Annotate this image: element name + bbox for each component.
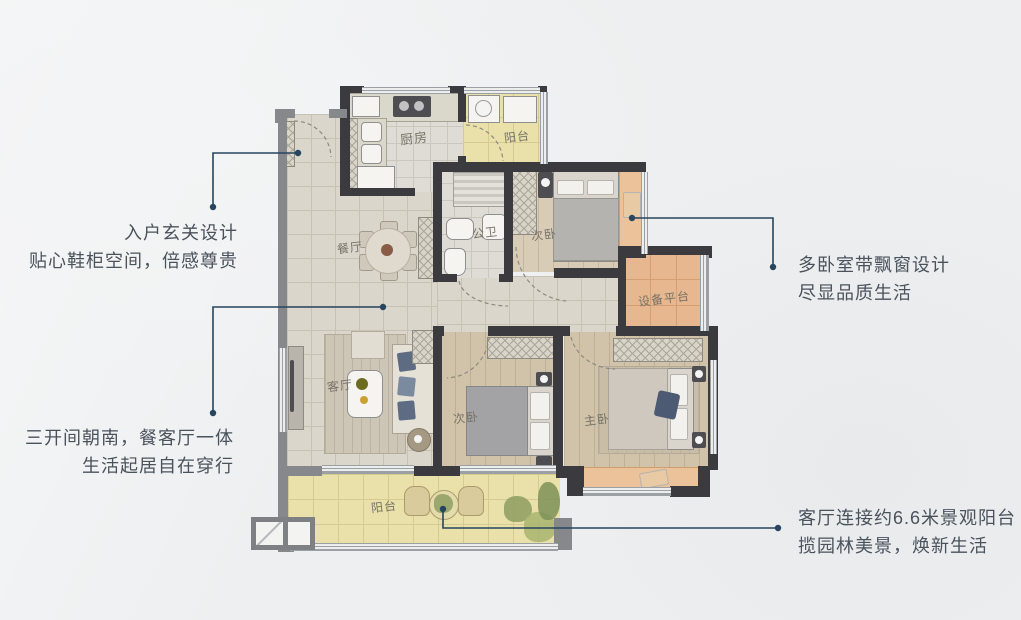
toilet [444,248,466,276]
window [700,255,709,331]
room-label-bedroom-top: 次卧 [530,224,558,244]
floor-plan-page: 厨房 阳台 公卫 次卧 设备平台 餐厅 客厅 次卧 主卧 阳台 入户玄关设计 贴… [0,0,1021,620]
coffee-table [347,370,383,418]
bay-cushion [623,192,641,218]
wall-segment [488,326,570,336]
coffee-table-decor [360,396,368,404]
stove-burner [414,101,424,111]
balcony-chair [404,486,430,516]
pillow [557,180,584,195]
ac-platform-cell [256,522,283,545]
side-table-decor [414,435,422,443]
leader-dot [775,525,781,531]
annotation-balcony: 客厅连接约6.6米景观阳台 揽园林美景，焕新生活 [798,504,1016,560]
plant [538,482,560,520]
annotation-balcony-line2: 揽园林美景，焕新生活 [798,532,1016,560]
window [710,360,717,454]
room-label-kitchen: 厨房 [399,126,429,148]
window [362,87,450,94]
potted-plant [434,494,453,513]
ac-platform [251,517,315,550]
wall-segment [618,246,626,334]
annotation-entry-line2: 贴心鞋柜空间，倍感尊贵 [20,247,238,275]
wall-segment [567,466,584,496]
window [540,92,548,164]
stove-burner [399,101,409,111]
leader-dot [210,410,216,416]
annotation-bedroom-line1: 多卧室带飘窗设计 [798,251,950,279]
balcony-rail [290,543,558,551]
room-label-balcony-bottom: 阳台 [370,496,398,516]
wall-segment [345,188,415,196]
sofa-cushion [397,400,416,420]
kitchen-sink [361,122,382,142]
window [464,87,540,94]
room-label-bedroom-middle: 次卧 [452,407,480,427]
window [583,487,671,496]
window [279,348,287,432]
tv [290,360,294,412]
washing-machine-door [475,100,492,117]
lamp [695,370,703,378]
annotation-balcony-line1: 客厅连接约6.6米景观阳台 [798,504,1016,532]
pouf [351,331,385,359]
room-label-balcony-top: 阳台 [503,126,531,146]
wall-segment [458,92,466,122]
balcony-chair [458,486,484,516]
annotation-living: 三开间朝南，餐客厅一体 生活起居自在穿行 [20,424,234,480]
lamp [540,375,548,383]
annotation-entry: 入户玄关设计 贴心鞋柜空间，倍感尊贵 [20,219,238,275]
wall-segment [499,274,513,282]
annotation-entry-line1: 入户玄关设计 [20,219,238,247]
room-label-bathroom: 公卫 [471,222,499,242]
bathtub [446,218,474,240]
annotation-living-line2: 生活起居自在穿行 [20,452,234,480]
lamp [695,436,703,444]
annotation-living-line1: 三开间朝南，餐客厅一体 [20,424,234,452]
wall-segment [618,246,712,255]
wall-segment [329,109,347,118]
wall-segment [698,466,710,490]
blanket [553,198,619,261]
wall-segment [553,336,563,468]
window [460,465,556,474]
annotation-bedroom: 多卧室带飘窗设计 尽显品质生活 [798,251,950,307]
room-label-dining: 餐厅 [336,237,364,257]
leader-dot [770,264,776,270]
balcony-slider-window [322,465,414,474]
pillow [587,180,614,195]
pillow [530,422,550,450]
wardrobe-bedroom-top [511,171,537,235]
wall-segment [433,274,457,282]
wall-segment [433,162,442,282]
lamp [541,178,550,187]
wall-segment [414,466,460,476]
bay-window-glass [641,172,648,254]
sofa-cushion [397,376,416,397]
bath-mat [453,172,507,207]
wall-segment [433,330,442,470]
laundry-basin [503,96,537,123]
wall-segment [554,268,622,278]
kitchen-sink [361,144,382,164]
wardrobe-master [613,338,703,362]
wall-segment [504,166,513,278]
annotation-bedroom-line2: 尽显品质生活 [798,279,950,307]
wardrobe-bedroom-middle [487,337,557,359]
wall-segment [340,86,350,196]
leader-dot [210,204,216,210]
room-label-master: 主卧 [583,409,611,429]
floor-hallway [437,276,622,332]
ac-platform-divider [283,522,288,545]
table-centerpiece [381,244,393,256]
coffee-table-decor [356,378,368,390]
pillow [530,392,550,420]
kitchen-oven [352,96,380,117]
room-label-living: 客厅 [326,375,354,395]
